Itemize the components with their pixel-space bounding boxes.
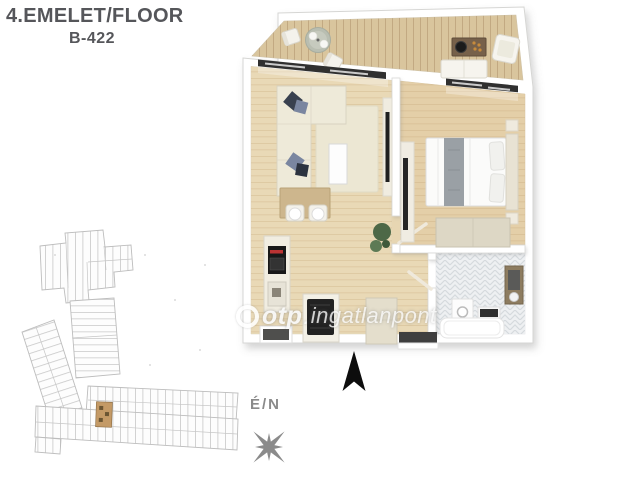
entry-cabinet	[366, 298, 397, 344]
bedroom-tv	[403, 158, 408, 230]
balcony-bench	[441, 60, 487, 78]
balcony-plate	[320, 40, 328, 48]
compass-rose-icon	[253, 431, 284, 462]
unit-number: B-422	[6, 30, 178, 47]
north-arrow-icon	[343, 351, 366, 391]
wall-bathroom-left-lower	[428, 288, 436, 334]
mirror	[508, 270, 520, 290]
chair-cushion	[289, 208, 301, 220]
plant	[373, 223, 391, 241]
coffee-table	[329, 144, 347, 184]
floor-plan-canvas	[0, 0, 640, 480]
balcony-armchair	[492, 34, 521, 64]
bed-pillow	[489, 142, 505, 171]
tv	[386, 112, 390, 182]
sofa-pillow	[295, 163, 309, 177]
wall-living-bedroom	[392, 78, 400, 216]
chair-cushion	[312, 208, 324, 220]
bed-pillow	[489, 174, 505, 203]
site-plan-upper-block	[40, 230, 133, 303]
entrance-sill	[398, 343, 438, 349]
sink	[510, 293, 519, 302]
bed-runner	[444, 138, 464, 206]
site-plan	[22, 230, 238, 454]
balcony-plate	[309, 32, 317, 40]
apartment-plan	[243, 7, 533, 349]
compass-label: É/N	[250, 396, 310, 413]
cooktop	[307, 299, 334, 335]
floor-title: 4.EMELET/FLOOR B-422	[6, 6, 178, 47]
site-plan-corner-block	[35, 437, 61, 454]
wall-bathroom-left-upper	[428, 253, 436, 260]
site-plan-connector-wing	[70, 298, 120, 378]
headboard	[506, 134, 518, 210]
nightstand	[506, 120, 518, 131]
floor-title-line: 4.EMELET/FLOOR	[6, 6, 178, 28]
entrance-door-opening	[399, 332, 437, 343]
site-plan-highlight-unit	[96, 402, 113, 428]
